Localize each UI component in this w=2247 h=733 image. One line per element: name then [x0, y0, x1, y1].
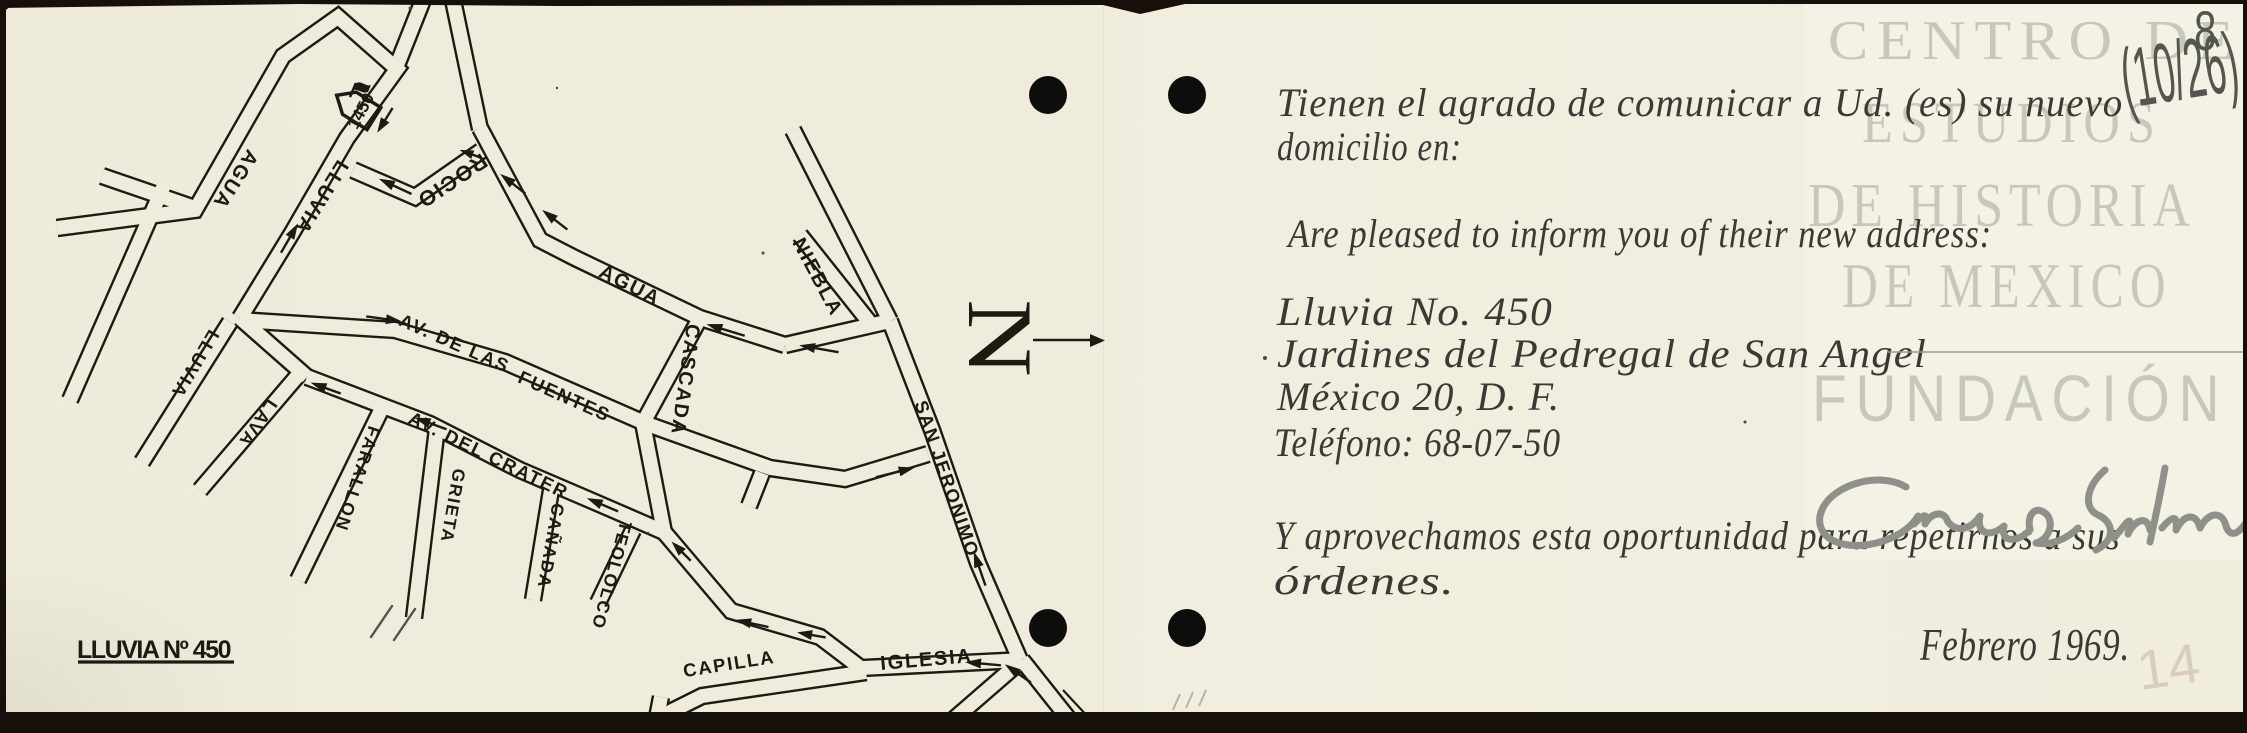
svg-text:LAVA: LAVA [235, 396, 282, 452]
svg-text:AGUA: AGUA [595, 261, 664, 311]
svg-text:CAPILLA: CAPILLA [682, 646, 777, 681]
svg-text:8: 8 [2194, 1, 2216, 63]
svg-text:14: 14 [2133, 631, 2203, 702]
svg-text:GRIETA: GRIETA [436, 467, 469, 545]
svg-text:N: N [949, 299, 1051, 377]
svg-text:TEOLOLCO: TEOLOLCO [588, 519, 636, 632]
svg-text:SAN JERONIMO: SAN JERONIMO [910, 398, 983, 560]
svg-text:(10/26): (10/26) [2114, 14, 2244, 126]
svg-text:LLUVIA Nº 450: LLUVIA Nº 450 [77, 636, 234, 664]
